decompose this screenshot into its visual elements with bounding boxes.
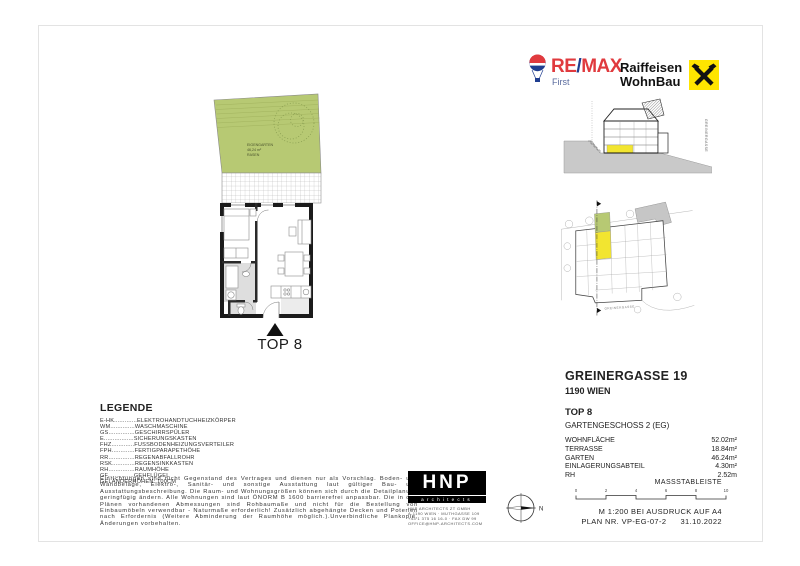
- site-plan: GREINERGASSE: [557, 197, 697, 324]
- remax-sub-label: First: [552, 78, 622, 87]
- sink: [303, 289, 309, 295]
- architect-logo-sub: architects: [408, 496, 486, 503]
- building-section: [604, 99, 668, 153]
- washbasin: [243, 272, 250, 277]
- architect-logo: HNP architects HNP ARCHITECTS ZT GMBH A-…: [408, 471, 486, 526]
- remax-logo: RE/MAX First: [528, 54, 622, 87]
- apartment-plan: [220, 203, 313, 318]
- garden-label-line3: RASEN: [247, 153, 260, 157]
- scalebar-tick-label: 0: [575, 488, 578, 493]
- info-city: 1190 WIEN: [565, 386, 737, 396]
- sofa: [298, 220, 311, 244]
- info-unit: TOP 8: [565, 407, 737, 418]
- siteplan-street-label: GREINERGASSE: [604, 304, 635, 310]
- building-footprint: [576, 221, 667, 303]
- architect-address-line: +43 1 375 16 16-0 · FAX DW 99: [408, 516, 486, 521]
- section-diagram: GREINERGASSE: [562, 93, 712, 178]
- bathtub: [226, 266, 238, 288]
- scale-bar: 0 2 4 6 8 10: [574, 487, 730, 502]
- meta-scale-note: M 1:200 BEI AUSDRUCK AUF A4: [599, 507, 722, 516]
- highlighted-unit-section: [607, 145, 633, 153]
- dining-table: [285, 252, 303, 276]
- highlighted-unit: [595, 231, 611, 260]
- garden-label-line1: EIGENGARTEN: [247, 143, 273, 147]
- scalebar-tick-label: 10: [724, 488, 729, 493]
- area-table: WOHNFLÄCHE52.02m² TERRASSE18.84m² GARTEN…: [565, 437, 737, 481]
- raiffeisen-wordmark-line2: WohnBau: [620, 75, 682, 89]
- architect-address-line: OFFICE@HNP-ARCHITECTS.COM: [408, 521, 486, 526]
- terrace-area: [222, 173, 321, 203]
- raiffeisen-wordmark-line1: Raiffeisen: [620, 61, 682, 75]
- meta-date: 31.10.2022: [680, 517, 722, 526]
- compass-label: N: [539, 507, 543, 513]
- table-row: GARTEN46.24m²: [565, 455, 737, 464]
- kitchen-area: [281, 296, 311, 316]
- meta-plan-line: PLAN NR. VP-EG-07-2 31.10.2022: [581, 517, 722, 526]
- table-row: EINLAGERUNGSABTEIL4.30m²: [565, 463, 737, 472]
- remax-balloon-icon: [528, 54, 547, 84]
- floor-plan-drawing: EIGENGARTEN 46,24 m² RASEN: [185, 80, 375, 360]
- raiffeisen-emblem-icon: [689, 60, 719, 90]
- architect-logo-text: HNP: [408, 471, 486, 495]
- toilet: [238, 307, 244, 315]
- scalebar-title: MASSSTABLEISTE: [655, 479, 722, 486]
- meta-plan-no: PLAN NR. VP-EG-07-2: [581, 517, 666, 526]
- garden-label-line2: 46,24 m²: [247, 148, 262, 152]
- info-block: GREINERGASSE 19 1190 WIEN TOP 8 GARTENGE…: [565, 369, 737, 481]
- legend: LEGENDE E-HK.............ELEKTROHANDTUCH…: [100, 402, 400, 485]
- remax-wordmark: RE/MAX: [551, 57, 622, 76]
- scalebar-tick-label: 2: [605, 488, 608, 493]
- scalebar-tick-label: 6: [665, 488, 668, 493]
- scalebar-tick-label: 4: [635, 488, 638, 493]
- scalebar-tick-label: 8: [695, 488, 698, 493]
- table-row: TERRASSE18.84m²: [565, 446, 737, 455]
- garden-area: EIGENGARTEN 46,24 m² RASEN: [214, 94, 321, 173]
- bed: [224, 209, 249, 240]
- unit-label: TOP 8: [185, 336, 375, 353]
- disclaimer-text: Einrichtungen sind nicht Gegenstand des …: [100, 476, 418, 527]
- plan-document-page: RE/MAX First Raiffeisen WohnBau: [0, 0, 800, 566]
- info-floor: GARTENGESCHOSS 2 (EG): [565, 421, 737, 430]
- entrance-triangle-icon: [267, 323, 284, 336]
- info-address: GREINERGASSE 19: [565, 369, 737, 383]
- architect-address-line: A-1190 WIEN · MUTHGASSE 109: [408, 511, 486, 516]
- raiffeisen-logo: Raiffeisen WohnBau: [620, 60, 719, 90]
- table-row: WOHNFLÄCHE52.02m²: [565, 437, 737, 446]
- north-compass-icon: N: [505, 492, 549, 526]
- legend-title: LEGENDE: [100, 402, 400, 414]
- section-street-label: GREINERGASSE: [704, 119, 708, 152]
